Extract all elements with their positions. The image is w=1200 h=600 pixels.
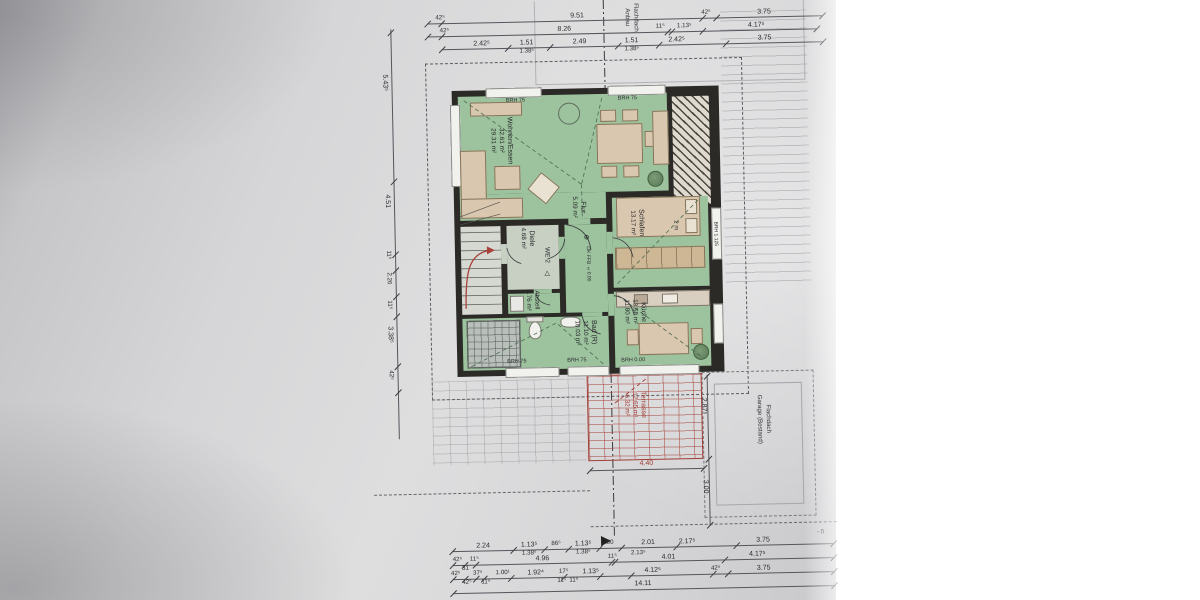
label-abstell: Abstell 2.76 m² — [524, 289, 541, 311]
dim-label: 4.96 — [536, 555, 550, 562]
dim-label: 42⁵ — [462, 580, 472, 586]
photo-right-edge — [804, 0, 874, 600]
dim-label: 3.75 — [758, 34, 772, 41]
dim-label: 2.42⁵ — [473, 40, 490, 47]
dim-label: 3.75 — [756, 536, 770, 543]
dim-label: 4.17⁵ — [748, 21, 765, 28]
dim-label: 31 — [462, 566, 469, 572]
dim-label: 2.24 — [476, 542, 490, 549]
level-cross-icon: ⊕ — [584, 234, 590, 241]
dim-label: 5.43⁵ — [381, 74, 388, 91]
dim-label: 42⁵ — [435, 15, 445, 21]
brh-label: BRH 0.00 — [621, 358, 645, 364]
dim-label: 11⁵ — [386, 300, 392, 309]
dim-label: 42⁵ — [711, 566, 721, 572]
dim-label: 3.75 — [757, 564, 771, 571]
dim-label: 11⁵ — [608, 554, 617, 560]
drawing-sheet: Wohnen/Essen 32.61 m² 29.31 m² Flur 5.09… — [0, 0, 1200, 600]
dim-label: 4.40 — [640, 460, 654, 467]
dim-label: 4.51 — [384, 194, 391, 208]
dim-label: 4.01 — [662, 553, 676, 560]
dim-label: 11⁵ — [385, 250, 391, 259]
brh-label: BRH 75 — [618, 96, 637, 102]
dim-label: 11⁵ — [656, 24, 665, 30]
label-terrasse: Terrasse 12.65 m² 6.32 m² — [622, 391, 648, 418]
wardrobe-size-label: 2 m — [672, 220, 678, 230]
dim-label: 2.26 — [385, 272, 391, 284]
dim-label: 1.38⁵ — [624, 46, 639, 53]
stair-arrow-head — [487, 246, 495, 254]
dim-label: 17⁵ — [559, 569, 569, 575]
dim-label: 2.01 — [641, 539, 655, 546]
dim-label: 1.38⁵ — [576, 549, 591, 556]
dim-label: 2.17⁵ — [679, 538, 696, 545]
dim-label: 2.13⁵ — [631, 550, 646, 557]
brh-label: BRH 75 — [567, 358, 586, 364]
dim-label: 9.51 — [570, 12, 584, 19]
dim-label: 1.13⁵ — [677, 23, 692, 30]
dim-label: 4.17⁵ — [749, 551, 766, 558]
dim-label: 2.49 — [573, 38, 587, 45]
dim-label: 3.75 — [757, 8, 771, 15]
level-label: OK FFB ±0.00 — [585, 246, 591, 281]
dim-label: 42⁵ — [451, 571, 461, 577]
dim-label: 3.00 — [702, 480, 709, 494]
dim-label: 2.87⁵ — [700, 398, 707, 415]
anbau-label: Flachdach Anbau — [622, 3, 640, 32]
dim-label: 1.92⁴ — [527, 569, 544, 576]
dim-label-total: 14.11 — [634, 580, 651, 587]
dim-label: 42⁵ — [453, 557, 463, 563]
dim-label: 1.51 — [520, 39, 534, 46]
dim-label: 1.38⁵ — [519, 48, 534, 55]
garage-label: Flachdach Garage (Bestand) — [754, 394, 772, 444]
dim-label: 11⁵ — [470, 557, 479, 563]
entrance-triangle-icon: △ — [544, 269, 550, 277]
dim-label: 80 — [607, 540, 614, 546]
brh-label: BRH 75 — [506, 99, 525, 105]
dim-label: 11⁵ — [569, 578, 578, 584]
dim-label: 42⁵ — [387, 370, 393, 380]
dim-label: 11⁵ — [557, 578, 566, 584]
label-bad: Bad (R) 11.10 m² 10.03 m² — [572, 320, 598, 345]
brh-label: BRH 1.125 — [712, 222, 718, 247]
dim-label: 1.38⁵ — [522, 550, 537, 557]
construction-lines — [0, 0, 1200, 600]
dim-label: 1.51 — [625, 37, 639, 44]
dim-label: 1.00¹ — [496, 570, 510, 576]
dim-label: 42⁵ — [440, 28, 450, 34]
dim-label: 2.42⁵ — [668, 36, 685, 43]
dim-label: 1.13⁵ — [521, 541, 538, 548]
label-kueche: Küche 13.58 m² 11.80 m² — [622, 299, 648, 324]
dim-label: 11⁵ — [481, 579, 490, 585]
dim-label: 42⁵ — [701, 10, 711, 16]
brh-label: BRH 75 — [507, 360, 526, 366]
unit-marker-we2: WE 2 — [543, 247, 550, 263]
dim-label: 1.13⁵ — [582, 568, 599, 575]
label-wohnen-essen: Wohnen/Essen 32.61 m² 29.31 m² — [488, 117, 514, 165]
dim-label: 4.12⁵ — [644, 567, 661, 574]
dim-label: 1.13⁵ — [575, 540, 592, 547]
label-diele: Diele 4.68 m² — [518, 227, 536, 249]
dim-label: 86⁵ — [551, 541, 561, 547]
dim-label: 3.38⁵ — [387, 326, 394, 343]
dim-label: 37⁵ — [473, 571, 483, 577]
dim-label: 8.26 — [557, 26, 571, 33]
label-schlafen: Schlafen 13.17 m² — [628, 209, 646, 237]
floor-plan-photo: Wohnen/Essen 32.61 m² 29.31 m² Flur 5.09… — [0, 0, 1200, 600]
label-flur: Flur 5.09 m² — [570, 196, 588, 218]
